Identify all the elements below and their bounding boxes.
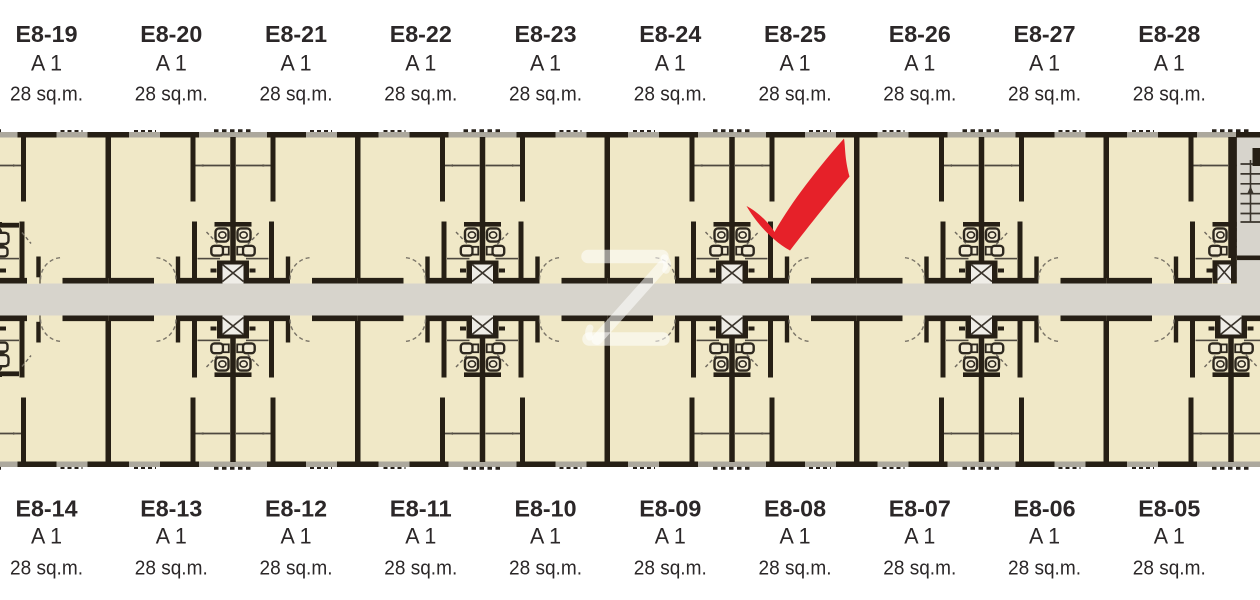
svg-text:28 sq.m.: 28 sq.m. [260, 83, 333, 106]
svg-text:E8-27: E8-27 [1014, 21, 1076, 47]
svg-text:28 sq.m.: 28 sq.m. [135, 557, 208, 580]
svg-text:A 1: A 1 [31, 524, 62, 549]
svg-text:A 1: A 1 [780, 524, 811, 549]
svg-text:A 1: A 1 [281, 51, 312, 76]
svg-text:A 1: A 1 [405, 51, 436, 76]
svg-text:28 sq.m.: 28 sq.m. [883, 557, 956, 580]
svg-text:28 sq.m.: 28 sq.m. [634, 557, 707, 580]
svg-text:E8-12: E8-12 [265, 496, 327, 522]
svg-text:E8-08: E8-08 [764, 496, 826, 522]
svg-text:28 sq.m.: 28 sq.m. [759, 557, 832, 580]
svg-text:E8-20: E8-20 [140, 21, 202, 47]
svg-text:28 sq.m.: 28 sq.m. [634, 83, 707, 106]
svg-text:A 1: A 1 [156, 51, 187, 76]
svg-text:E8-21: E8-21 [265, 21, 327, 47]
svg-text:A 1: A 1 [1154, 51, 1185, 76]
svg-text:E8-23: E8-23 [515, 21, 577, 47]
svg-text:E8-10: E8-10 [515, 496, 577, 522]
svg-text:A 1: A 1 [1154, 524, 1185, 549]
svg-text:E8-14: E8-14 [16, 496, 78, 522]
svg-text:28 sq.m.: 28 sq.m. [759, 83, 832, 106]
svg-text:E8-09: E8-09 [639, 496, 701, 522]
svg-text:A 1: A 1 [281, 524, 312, 549]
svg-text:E8-22: E8-22 [390, 21, 452, 47]
svg-text:E8-07: E8-07 [889, 496, 951, 522]
svg-text:28 sq.m.: 28 sq.m. [135, 83, 208, 106]
svg-text:E8-19: E8-19 [16, 21, 78, 47]
svg-text:E8-26: E8-26 [889, 21, 951, 47]
svg-text:E8-11: E8-11 [390, 496, 452, 522]
svg-text:E8-25: E8-25 [764, 21, 826, 47]
svg-text:E8-06: E8-06 [1014, 496, 1076, 522]
svg-text:28 sq.m.: 28 sq.m. [384, 557, 457, 580]
svg-text:A 1: A 1 [655, 51, 686, 76]
svg-text:A 1: A 1 [530, 524, 561, 549]
svg-text:28 sq.m.: 28 sq.m. [260, 557, 333, 580]
svg-text:E8-13: E8-13 [140, 496, 202, 522]
svg-text:28 sq.m.: 28 sq.m. [509, 83, 582, 106]
svg-text:E8-05: E8-05 [1138, 496, 1200, 522]
svg-text:A 1: A 1 [1029, 524, 1060, 549]
svg-text:28 sq.m.: 28 sq.m. [1133, 83, 1206, 106]
svg-text:A 1: A 1 [1029, 51, 1060, 76]
svg-text:28 sq.m.: 28 sq.m. [1008, 557, 1081, 580]
svg-text:28 sq.m.: 28 sq.m. [384, 83, 457, 106]
svg-text:A 1: A 1 [31, 51, 62, 76]
svg-text:A 1: A 1 [405, 524, 436, 549]
svg-text:A 1: A 1 [156, 524, 187, 549]
svg-text:28 sq.m.: 28 sq.m. [883, 83, 956, 106]
svg-text:A 1: A 1 [530, 51, 561, 76]
svg-text:28 sq.m.: 28 sq.m. [509, 557, 582, 580]
svg-text:28 sq.m.: 28 sq.m. [1008, 83, 1081, 106]
svg-text:A 1: A 1 [904, 51, 935, 76]
svg-text:A 1: A 1 [904, 524, 935, 549]
svg-text:E8-24: E8-24 [639, 21, 701, 47]
svg-text:28 sq.m.: 28 sq.m. [1133, 557, 1206, 580]
svg-text:28 sq.m.: 28 sq.m. [10, 83, 83, 106]
svg-text:A 1: A 1 [780, 51, 811, 76]
svg-text:E8-28: E8-28 [1138, 21, 1200, 47]
svg-text:A 1: A 1 [655, 524, 686, 549]
svg-text:28 sq.m.: 28 sq.m. [10, 557, 83, 580]
